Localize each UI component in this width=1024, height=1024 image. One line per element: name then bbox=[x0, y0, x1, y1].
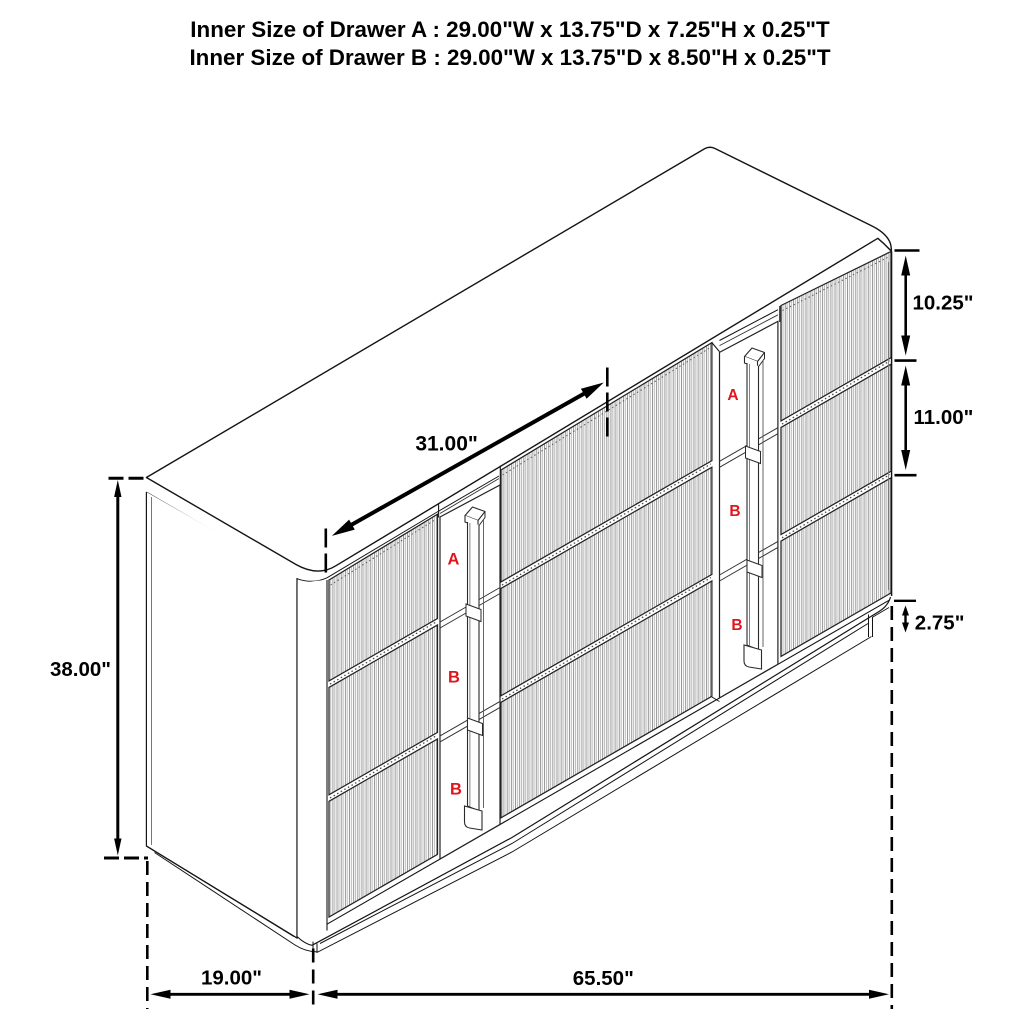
svg-text:B: B bbox=[448, 669, 460, 687]
svg-text:19.00": 19.00" bbox=[201, 967, 262, 990]
svg-text:10.25": 10.25" bbox=[913, 292, 974, 315]
svg-text:2.75": 2.75" bbox=[915, 612, 965, 635]
svg-text:11.00": 11.00" bbox=[914, 406, 974, 429]
svg-text:B: B bbox=[731, 617, 742, 634]
svg-text:Inner Size of Drawer A : 29.00: Inner Size of Drawer A : 29.00"W x 13.75… bbox=[190, 17, 830, 42]
svg-text:38.00": 38.00" bbox=[50, 658, 111, 681]
svg-text:B: B bbox=[729, 503, 740, 520]
svg-text:Inner Size of Drawer B : 29.00: Inner Size of Drawer B : 29.00"W x 13.75… bbox=[189, 45, 830, 70]
svg-text:31.00": 31.00" bbox=[415, 432, 478, 455]
svg-text:A: A bbox=[448, 551, 460, 569]
svg-text:65.50": 65.50" bbox=[573, 967, 634, 990]
svg-text:B: B bbox=[450, 781, 462, 799]
svg-text:A: A bbox=[727, 387, 738, 404]
